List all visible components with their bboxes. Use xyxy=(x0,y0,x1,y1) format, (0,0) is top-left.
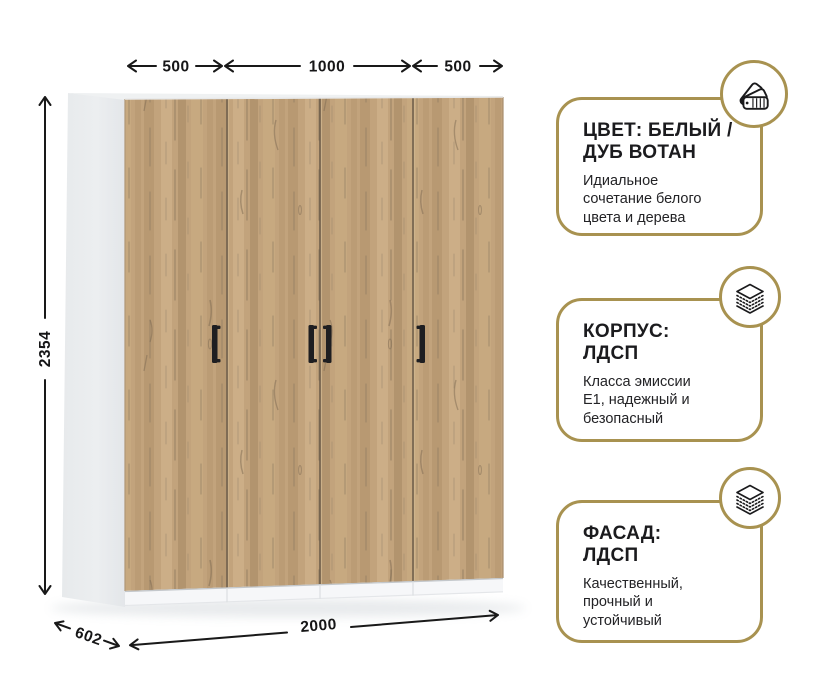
feature-card-body: Класса эмиссии Е1, надежный и безопасный xyxy=(583,373,744,428)
feature-card-title: ФАСАД: ЛДСП xyxy=(583,523,744,567)
layers-icon xyxy=(719,467,781,529)
color-swatch-fan-icon xyxy=(720,60,788,128)
dimension-label-top-right: 500 xyxy=(444,59,471,76)
dimension-label-depth: 602 xyxy=(73,624,104,649)
feature-card-title: КОРПУС: ЛДСП xyxy=(583,321,744,365)
dimension-top-middle: 1000 xyxy=(225,59,410,76)
dimension-top-right: 500 xyxy=(413,59,502,76)
wardrobe-illustration: 500 1000 500 2354 602 xyxy=(0,0,545,700)
dimension-top-left: 500 xyxy=(128,59,222,76)
feature-card-body: Идиальное сочетание белого цвета и дерев… xyxy=(583,172,744,227)
dimension-label-top-middle: 1000 xyxy=(309,59,345,76)
product-infographic: 500 1000 500 2354 602 xyxy=(0,0,816,700)
wardrobe-body xyxy=(62,93,503,607)
dimension-label-top-left: 500 xyxy=(162,59,189,76)
dimension-depth: 602 xyxy=(55,621,119,649)
side-panel xyxy=(62,93,125,607)
dimension-label-height: 2354 xyxy=(37,331,54,367)
feature-card-body: Качественный, прочный и устойчивый xyxy=(583,575,744,630)
layers-icon xyxy=(719,266,781,328)
dimension-label-width: 2000 xyxy=(300,616,338,636)
feature-card-title: ЦВЕТ: БЕЛЫЙ / ДУБ ВОТАН xyxy=(583,120,744,164)
dimension-height: 2354 xyxy=(37,97,54,594)
